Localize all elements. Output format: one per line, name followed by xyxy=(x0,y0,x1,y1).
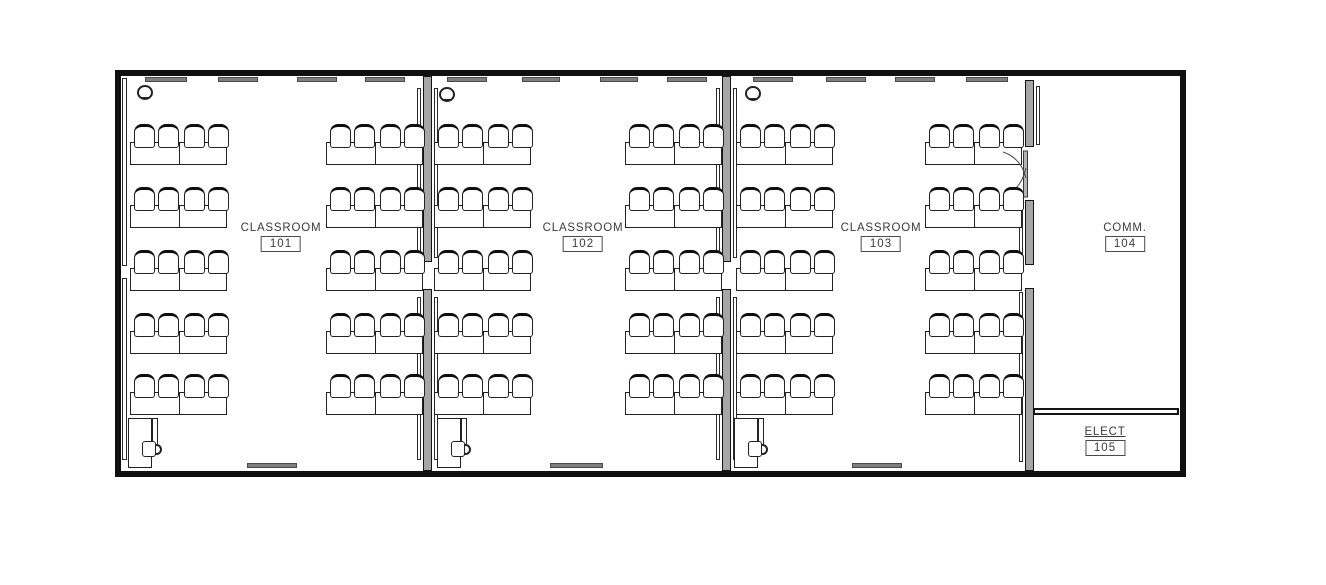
student-chair xyxy=(929,374,950,398)
student-chair xyxy=(134,187,155,211)
desk-cluster xyxy=(925,187,1022,230)
student-chair xyxy=(208,124,229,148)
light-bar xyxy=(667,77,707,82)
student-chair xyxy=(512,250,533,274)
student-chair xyxy=(184,313,205,337)
student-chair xyxy=(404,124,425,148)
student-chair xyxy=(158,374,179,398)
teacher-chair-back xyxy=(761,444,768,455)
student-chair xyxy=(354,374,375,398)
room-number-box: 103 xyxy=(861,236,901,252)
student-chair xyxy=(134,124,155,148)
student-chair xyxy=(438,250,459,274)
light-bar xyxy=(895,77,935,82)
student-chair xyxy=(134,374,155,398)
marker-board xyxy=(733,88,737,258)
student-chair xyxy=(512,374,533,398)
whiteboard-bar xyxy=(247,463,297,468)
room-number: 105 xyxy=(1094,442,1116,454)
light-bar xyxy=(753,77,793,82)
student-chair xyxy=(354,250,375,274)
desk-cluster xyxy=(736,124,833,167)
student-chair xyxy=(208,374,229,398)
student-chair xyxy=(814,124,835,148)
student-chair xyxy=(354,124,375,148)
wall-segment xyxy=(1025,80,1034,147)
marker-board xyxy=(716,88,720,258)
whiteboard-bar xyxy=(852,463,902,468)
desk-cluster xyxy=(925,250,1022,293)
student-chair xyxy=(629,124,650,148)
student-chair xyxy=(764,313,785,337)
device-symbol xyxy=(439,87,455,102)
student-chair xyxy=(438,313,459,337)
room-label-elect-105: ELECT 105 xyxy=(1084,426,1125,456)
student-chair xyxy=(488,187,509,211)
student-chair xyxy=(953,124,974,148)
marker-board xyxy=(122,278,127,460)
light-bar xyxy=(966,77,1008,82)
student-chair xyxy=(703,313,724,337)
student-chair xyxy=(790,374,811,398)
room-number-box: 104 xyxy=(1105,236,1145,252)
student-chair xyxy=(1003,250,1024,274)
student-chair xyxy=(438,187,459,211)
student-chair xyxy=(462,187,483,211)
teacher-chair xyxy=(142,441,156,457)
room-name: CLASSROOM xyxy=(841,222,922,234)
device-symbol xyxy=(745,86,761,101)
student-chair xyxy=(629,187,650,211)
desk-cluster xyxy=(434,124,531,167)
room-name: ELECT xyxy=(1084,426,1125,438)
floor-plan: CLASSROOM 101 CLASSROOM 102 CLASSROOM 10… xyxy=(0,0,1326,585)
teacher-chair xyxy=(748,441,762,457)
student-chair xyxy=(208,313,229,337)
desk-cluster xyxy=(130,313,227,356)
student-chair xyxy=(184,374,205,398)
wall-segment xyxy=(1025,200,1034,265)
light-bar xyxy=(522,77,560,82)
student-chair xyxy=(929,187,950,211)
student-chair xyxy=(953,374,974,398)
desk-cluster xyxy=(925,124,1022,167)
light-bar xyxy=(365,77,405,82)
desk-cluster xyxy=(434,187,531,230)
student-chair xyxy=(438,124,459,148)
marker-board xyxy=(417,88,421,258)
desk-cluster xyxy=(434,374,531,417)
student-chair xyxy=(790,187,811,211)
student-chair xyxy=(158,250,179,274)
whiteboard-bar xyxy=(550,463,603,468)
door-leaf xyxy=(1024,151,1028,197)
desk-cluster xyxy=(625,187,722,230)
student-chair xyxy=(134,250,155,274)
elect-room-wall xyxy=(1033,408,1179,415)
room-number-box: 105 xyxy=(1085,440,1125,456)
light-bar xyxy=(145,77,187,82)
student-chair xyxy=(462,250,483,274)
student-chair xyxy=(703,187,724,211)
student-chair xyxy=(158,313,179,337)
desk-cluster xyxy=(625,374,722,417)
student-chair xyxy=(679,187,700,211)
student-chair xyxy=(1003,374,1024,398)
student-chair xyxy=(438,374,459,398)
student-chair xyxy=(740,250,761,274)
exterior-wall-right xyxy=(1180,70,1186,477)
exterior-wall-top xyxy=(115,70,1186,76)
teacher-desk xyxy=(437,418,473,470)
desk-cluster xyxy=(736,374,833,417)
student-chair xyxy=(380,374,401,398)
student-chair xyxy=(679,250,700,274)
student-chair xyxy=(629,250,650,274)
student-chair xyxy=(512,124,533,148)
room-label-classroom-103: CLASSROOM 103 xyxy=(841,222,922,252)
student-chair xyxy=(404,313,425,337)
exterior-wall-left xyxy=(115,70,121,477)
student-chair xyxy=(740,187,761,211)
desk-cluster xyxy=(434,250,531,293)
desk-cluster xyxy=(326,124,423,167)
student-chair xyxy=(953,187,974,211)
marker-board xyxy=(434,88,438,258)
room-number: 102 xyxy=(572,238,594,250)
student-chair xyxy=(790,124,811,148)
room-number: 101 xyxy=(270,238,292,250)
room-name: COMM. xyxy=(1103,222,1147,234)
desk-cluster xyxy=(130,250,227,293)
desk-cluster xyxy=(925,374,1022,417)
student-chair xyxy=(330,374,351,398)
student-chair xyxy=(512,187,533,211)
room-label-comm-104: COMM. 104 xyxy=(1103,222,1147,252)
student-chair xyxy=(790,250,811,274)
student-chair xyxy=(653,187,674,211)
student-chair xyxy=(814,313,835,337)
student-chair xyxy=(929,313,950,337)
student-chair xyxy=(404,374,425,398)
light-bar xyxy=(600,77,638,82)
light-bar xyxy=(447,77,487,82)
student-chair xyxy=(330,124,351,148)
student-chair xyxy=(764,187,785,211)
student-chair xyxy=(979,187,1000,211)
desk-cluster xyxy=(326,187,423,230)
student-chair xyxy=(184,187,205,211)
room-number: 103 xyxy=(870,238,892,250)
student-chair xyxy=(184,250,205,274)
student-chair xyxy=(929,124,950,148)
student-chair xyxy=(404,250,425,274)
teacher-desk xyxy=(734,418,770,470)
student-chair xyxy=(1003,187,1024,211)
student-chair xyxy=(929,250,950,274)
student-chair xyxy=(330,313,351,337)
student-chair xyxy=(512,313,533,337)
student-chair xyxy=(740,124,761,148)
desk-cluster xyxy=(130,187,227,230)
desk-cluster xyxy=(130,374,227,417)
student-chair xyxy=(330,250,351,274)
student-chair xyxy=(208,187,229,211)
student-chair xyxy=(380,124,401,148)
exterior-wall-bottom xyxy=(115,471,1186,477)
student-chair xyxy=(158,124,179,148)
student-chair xyxy=(404,187,425,211)
student-chair xyxy=(1003,313,1024,337)
room-number: 104 xyxy=(1114,238,1136,250)
desk-cluster xyxy=(326,313,423,356)
marker-board xyxy=(122,78,127,266)
room-name: CLASSROOM xyxy=(543,222,624,234)
student-chair xyxy=(488,250,509,274)
student-chair xyxy=(184,124,205,148)
desk-cluster xyxy=(434,313,531,356)
student-chair xyxy=(953,313,974,337)
teacher-chair-back xyxy=(155,444,162,455)
student-chair xyxy=(653,250,674,274)
student-chair xyxy=(679,313,700,337)
student-chair xyxy=(979,313,1000,337)
student-chair xyxy=(653,313,674,337)
student-chair xyxy=(653,374,674,398)
student-chair xyxy=(629,313,650,337)
desk-cluster xyxy=(736,313,833,356)
student-chair xyxy=(814,187,835,211)
student-chair xyxy=(764,124,785,148)
light-bar xyxy=(826,77,866,82)
room-number-box: 101 xyxy=(261,236,301,252)
room-number-box: 102 xyxy=(563,236,603,252)
student-chair xyxy=(134,313,155,337)
desk-cluster xyxy=(625,250,722,293)
desk-cluster xyxy=(736,250,833,293)
student-chair xyxy=(740,374,761,398)
student-chair xyxy=(488,313,509,337)
desk-cluster xyxy=(326,374,423,417)
student-chair xyxy=(679,124,700,148)
student-chair xyxy=(330,187,351,211)
desk-cluster xyxy=(130,124,227,167)
student-chair xyxy=(979,250,1000,274)
wall-segment xyxy=(423,76,432,262)
student-chair xyxy=(740,313,761,337)
student-chair xyxy=(703,124,724,148)
room-label-classroom-102: CLASSROOM 102 xyxy=(543,222,624,252)
student-chair xyxy=(354,313,375,337)
student-chair xyxy=(979,124,1000,148)
student-chair xyxy=(488,124,509,148)
student-chair xyxy=(764,374,785,398)
student-chair xyxy=(158,187,179,211)
desk-cluster xyxy=(625,124,722,167)
student-chair xyxy=(814,250,835,274)
desk-cluster xyxy=(326,250,423,293)
student-chair xyxy=(488,374,509,398)
student-chair xyxy=(679,374,700,398)
teacher-chair xyxy=(451,441,465,457)
student-chair xyxy=(953,250,974,274)
desk-cluster xyxy=(625,313,722,356)
student-chair xyxy=(629,374,650,398)
desk-cluster xyxy=(736,187,833,230)
student-chair xyxy=(703,374,724,398)
student-chair xyxy=(462,313,483,337)
student-chair xyxy=(814,374,835,398)
student-chair xyxy=(208,250,229,274)
wall-segment xyxy=(1025,288,1034,471)
student-chair xyxy=(462,124,483,148)
light-bar xyxy=(218,77,258,82)
student-chair xyxy=(380,313,401,337)
student-chair xyxy=(380,250,401,274)
student-chair xyxy=(790,313,811,337)
room-label-classroom-101: CLASSROOM 101 xyxy=(241,222,322,252)
light-bar xyxy=(297,77,337,82)
desk-cluster xyxy=(925,313,1022,356)
student-chair xyxy=(653,124,674,148)
room-name: CLASSROOM xyxy=(241,222,322,234)
floor-plan-canvas: CLASSROOM 101 CLASSROOM 102 CLASSROOM 10… xyxy=(0,0,1326,585)
student-chair xyxy=(1003,124,1024,148)
wall-segment xyxy=(722,76,731,262)
student-chair xyxy=(979,374,1000,398)
student-chair xyxy=(354,187,375,211)
teacher-chair-back xyxy=(464,444,471,455)
marker-board xyxy=(1036,86,1040,145)
student-chair xyxy=(703,250,724,274)
device-symbol xyxy=(137,85,153,100)
teacher-desk xyxy=(128,418,164,470)
student-chair xyxy=(764,250,785,274)
student-chair xyxy=(380,187,401,211)
student-chair xyxy=(462,374,483,398)
